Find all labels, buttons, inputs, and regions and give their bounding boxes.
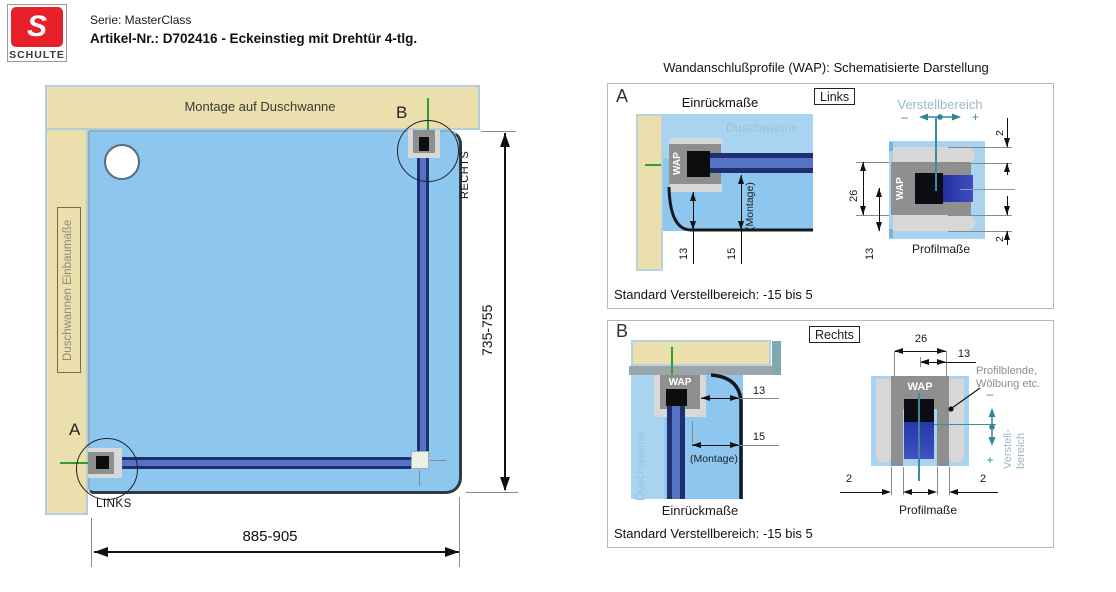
brand-name: SCHULTE xyxy=(8,49,66,61)
panel-a-dim2top-arrow-up xyxy=(1004,163,1010,172)
panel-b-verstell-line1: Verstell- xyxy=(1002,391,1015,469)
panel-b-wall-end xyxy=(772,341,781,375)
panel-a-side-label: Links xyxy=(814,88,855,105)
detail-b-letter: B xyxy=(396,103,407,123)
panel-a-glassholder xyxy=(687,151,710,177)
panel-a-dim13b-arrow-down xyxy=(876,222,882,231)
panel-b-dim26-label: 26 xyxy=(906,333,936,345)
panel-b-profilblende-line1: Profilblende, xyxy=(976,365,1054,378)
panel-b-vplus: + xyxy=(984,453,996,467)
wall-top-label: Montage auf Duschwanne xyxy=(120,99,400,114)
detail-circle-a xyxy=(76,438,138,500)
panel-a-green-mark xyxy=(645,164,661,166)
panel-a-dim13-arrow-up xyxy=(690,192,696,201)
dim-height-tick-bottom xyxy=(466,492,518,493)
panel-a-profile-wap-label: WAP xyxy=(891,162,911,215)
panel-b-dim2r-arrow-in xyxy=(928,489,937,495)
double-arrow-vertical-icon xyxy=(986,401,998,453)
panel-b-dim2r-arrow xyxy=(949,489,958,495)
dim-width-label: 885-905 xyxy=(215,528,325,545)
panel-a-dim2bot-arrow-down xyxy=(1004,206,1010,215)
panel-b-montage-label: (Montage) xyxy=(690,453,738,465)
panel-b-dim2l-arrow-in xyxy=(903,489,912,495)
brand-logo-letter: S xyxy=(27,10,47,43)
wall-left-label: Duschwannen Einbaumaße xyxy=(57,207,81,373)
panel-a-tick-3 xyxy=(948,215,1012,216)
panel-a-dim26-arrow-up xyxy=(860,162,866,171)
dim-height-tick-top xyxy=(481,131,516,132)
panel-a-dim15-label: 15 xyxy=(726,234,738,260)
panel-b-dim26-arrow-right xyxy=(937,348,946,354)
panel-b-dim26-tick-right xyxy=(946,351,947,376)
dim-width-line xyxy=(94,551,459,553)
panel-b-dim13-ext xyxy=(739,398,779,399)
panel-b-dim15-arrow-left xyxy=(692,442,701,448)
panel-a-profilmasse-label: Profilmaße xyxy=(896,242,986,256)
panel-a-dim13-arrow-down xyxy=(690,221,696,230)
panel-a-dim2bot-label: 2 xyxy=(994,226,1006,242)
panel-b-profile-arm-right xyxy=(937,409,949,466)
glass-bar-horizontal xyxy=(100,457,417,469)
panel-b-dim15-label: 15 xyxy=(748,431,770,443)
corner-connector xyxy=(411,451,429,469)
panel-b-dim2l-label: 2 xyxy=(842,473,856,485)
panel-b-verstell-label: Verstell- bereich xyxy=(1002,391,1028,469)
detail-b-label: RECHTS xyxy=(459,133,471,199)
panel-b-dim13b-arrow-left xyxy=(920,359,929,365)
panel-a-dim13-label: 13 xyxy=(678,234,690,260)
panel-a-dim26-label: 26 xyxy=(848,176,860,202)
right-section-title: Wandanschlußprofile (WAP): Schematisiert… xyxy=(640,60,1012,75)
dim-height-label: 735-755 xyxy=(479,272,495,356)
panel-a-wap-label: WAP xyxy=(669,144,687,184)
dim-width-ext-right xyxy=(459,497,460,567)
dim-width-arrow-left xyxy=(94,547,108,557)
brand-logo-mark: S xyxy=(11,7,63,47)
detail-circle-b xyxy=(397,120,459,182)
panel-b-dim2r-label: 2 xyxy=(976,473,990,485)
panel-b-profile-wap-label: WAP xyxy=(891,381,949,393)
panel-b-dim13b-tick-center xyxy=(920,357,921,367)
panel-b-dim2-tick-3 xyxy=(937,467,938,495)
panel-b-centerline-v xyxy=(918,393,920,481)
panel-a-dim2top-label: 2 xyxy=(994,120,1006,136)
panel-b: B Rechts Duschwanne WAP 13 15 (Montage) … xyxy=(607,320,1054,548)
panel-a-duschwanne-label: Duschwanne xyxy=(726,121,798,135)
dim-height-arrow-up xyxy=(500,133,510,147)
panel-b-dim26-arrow-left xyxy=(894,348,903,354)
panel-a-dim26-arrow-down xyxy=(860,206,866,215)
panel-a-wall xyxy=(636,114,663,271)
panel-b-dim2-tick-1 xyxy=(891,467,892,495)
panel-a-profile-lip-bottom xyxy=(893,215,975,231)
panel-b-profile-arm-left xyxy=(891,409,903,466)
panel-b-dim26-tick-left xyxy=(894,351,895,376)
panel-a-tick-1 xyxy=(948,147,1012,148)
dim-width-ext-left xyxy=(91,518,92,567)
panel-a-standard-text: Standard Verstellbereich: -15 bis 5 xyxy=(614,287,813,302)
panel-b-wall xyxy=(631,340,771,366)
panel-b-dim13-label: 13 xyxy=(748,385,770,397)
panel-a-profile-glassholder xyxy=(915,173,943,204)
page: S SCHULTE Serie: MasterClass Artikel-Nr.… xyxy=(0,0,1116,592)
panel-a-letter: A xyxy=(616,86,628,107)
panel-b-tray-edge xyxy=(703,373,748,501)
panel-a-dim2top-arrow-down xyxy=(1004,138,1010,147)
panel-a-verstell-arrows: – + xyxy=(890,110,990,124)
panel-a-heading: Einrückmaße xyxy=(660,95,780,110)
panel-b-profilmasse-label: Profilmaße xyxy=(883,503,973,517)
panel-b-standard-text: Standard Verstellbereich: -15 bis 5 xyxy=(614,526,813,541)
panel-a-verstell-centerline xyxy=(935,118,937,191)
panel-b-dim15-arrow-right xyxy=(730,442,739,448)
panel-a-montage-label: (Montage) xyxy=(744,172,756,230)
panel-b-side-label: Rechts xyxy=(809,326,860,343)
panel-a-dim15-line xyxy=(741,175,742,264)
dim-width-arrow-right xyxy=(445,547,459,557)
panel-a-dim13b-arrow-up xyxy=(876,188,882,197)
panel-b-dim13b-arrow-right xyxy=(937,359,946,365)
corner-tick-down xyxy=(419,470,420,486)
panel-a-profile-centerline-h xyxy=(960,189,1015,190)
panel-a-dim13b-label: 13 xyxy=(864,234,876,260)
panel-a-plus: + xyxy=(972,110,979,124)
artikel-text: Artikel-Nr.: D702416 - Eckeinstieg mit D… xyxy=(90,31,417,46)
detail-a-label: LINKS xyxy=(96,498,132,510)
panel-a-profile-lip-top xyxy=(893,147,975,163)
panel-b-vminus: – xyxy=(984,387,996,401)
panel-b-wap-label: WAP xyxy=(660,377,700,388)
panel-b-dim13b-ext xyxy=(946,362,976,363)
panel-b-dim13-arrow-left xyxy=(701,395,710,401)
panel-a-tick-6 xyxy=(856,215,889,216)
panel-b-dim13-arrow-right xyxy=(730,395,739,401)
panel-b-dim2l-arrow xyxy=(882,489,891,495)
panel-b-verstell-line2: bereich xyxy=(1015,391,1028,469)
panel-b-letter: B xyxy=(616,321,628,342)
shower-tray xyxy=(88,130,462,494)
serie-text: Serie: MasterClass xyxy=(90,13,191,27)
corner-tick-right xyxy=(430,460,446,461)
panel-b-heading: Einrückmaße xyxy=(650,503,750,518)
panel-b-profilblende-leader xyxy=(946,385,982,413)
panel-b-dim2r-line xyxy=(958,492,998,493)
panel-a-glass-bar xyxy=(710,153,813,173)
drain-circle xyxy=(104,144,140,180)
panel-b-dim2l-line xyxy=(840,492,882,493)
panel-b-glass-bar xyxy=(667,406,685,499)
dim-height-arrow-down xyxy=(500,477,510,491)
panel-b-dim2-mid-line xyxy=(912,492,928,493)
panel-b-green-mark xyxy=(671,347,673,375)
double-arrow-horizontal-icon xyxy=(911,111,969,123)
panel-b-dim13b-label: 13 xyxy=(953,348,975,360)
panel-b-profile-lip-left xyxy=(876,379,891,463)
panel-a-minus: – xyxy=(901,110,908,124)
dim-height-line xyxy=(504,133,506,490)
brand-logo: S SCHULTE xyxy=(7,4,67,62)
panel-a: A Einrückmaße Links Verstellbereich – + … xyxy=(607,83,1054,309)
panel-b-duschwanne-label: Duschwanne xyxy=(633,393,647,501)
panel-b-dim15-ext xyxy=(739,445,779,446)
detail-a-letter: A xyxy=(69,420,80,440)
panel-b-glassholder xyxy=(666,389,687,406)
